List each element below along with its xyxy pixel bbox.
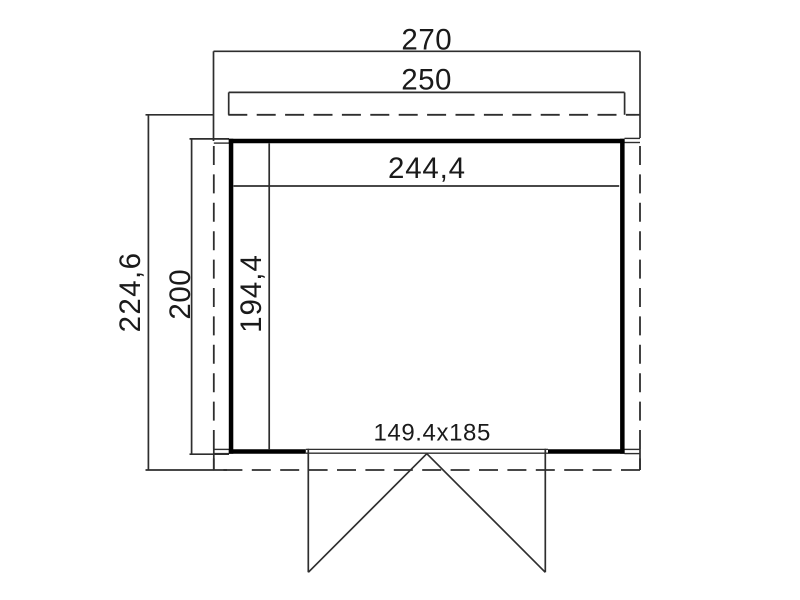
svg-text:194,4: 194,4 bbox=[235, 254, 268, 333]
svg-text:200: 200 bbox=[164, 269, 197, 320]
svg-text:149.4x185: 149.4x185 bbox=[373, 420, 491, 447]
svg-text:250: 250 bbox=[401, 64, 452, 97]
svg-text:244,4: 244,4 bbox=[388, 152, 466, 185]
svg-text:224,6: 224,6 bbox=[114, 252, 147, 333]
svg-text:270: 270 bbox=[401, 23, 452, 56]
